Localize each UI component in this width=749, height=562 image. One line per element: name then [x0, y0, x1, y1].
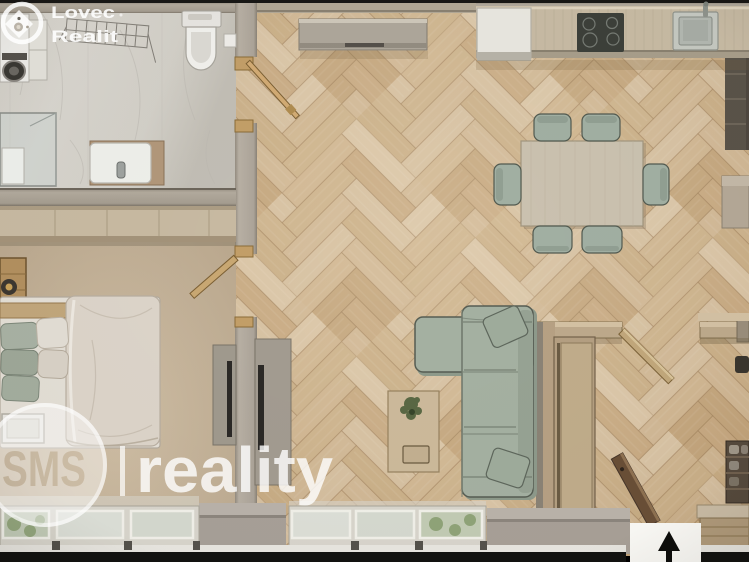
- svg-text:Lovec: Lovec: [51, 3, 115, 22]
- svg-text:reality: reality: [136, 434, 333, 506]
- svg-text:Realit: Realit: [51, 27, 118, 46]
- svg-text:SMS: SMS: [2, 441, 86, 497]
